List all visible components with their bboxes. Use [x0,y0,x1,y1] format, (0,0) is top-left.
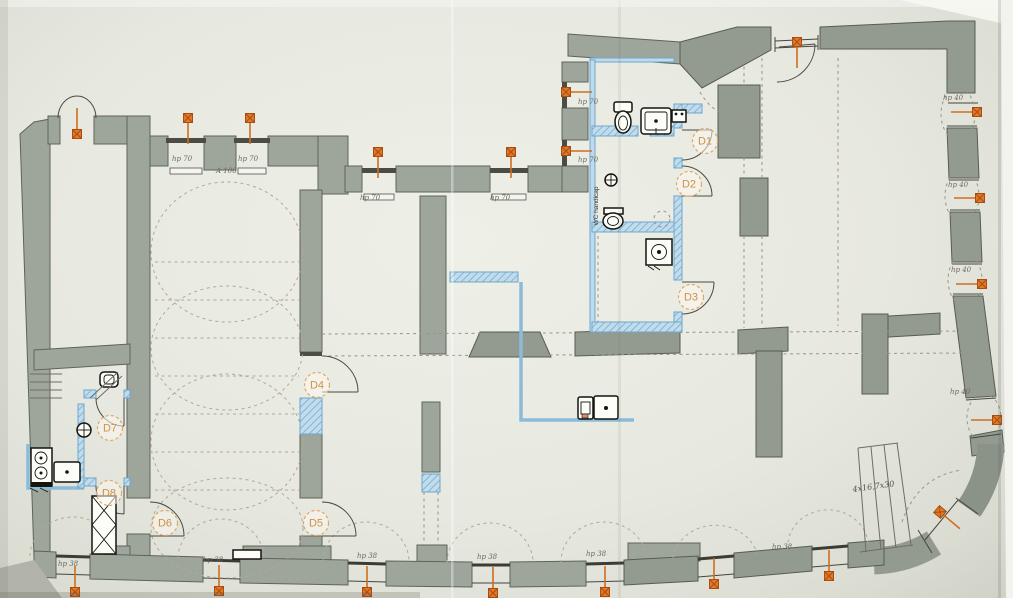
hp-label: hp 38 [477,553,498,561]
svg-text:D3: D3 [684,292,698,304]
hp-label: hp 38 [772,543,793,551]
svg-text:D6: D6 [158,518,172,530]
window-marker-icon [710,558,719,589]
kitchen-counter-sink [54,462,80,482]
door-label-d1: D1 [693,129,718,154]
door-label-d8: D8 [97,481,122,506]
double-sink [578,396,618,419]
bench [233,550,261,559]
svg-text:D1: D1 [698,136,712,148]
hp-label: hp 38 [203,556,224,564]
svg-text:D7: D7 [103,423,117,435]
svg-text:D8: D8 [102,488,116,500]
stair-note: 4x16,7x30 [851,479,895,494]
window-marker-icon [374,148,383,179]
wc-label: WC handicap [593,186,600,225]
hp-label: hp 70 [238,155,259,163]
floor-plan-photo: 4x16,7x30 hp 70 hp 70 hp 70 hp 70 hp 70 … [0,0,1013,598]
stairs-curved: 4x16,7x30 [851,443,913,552]
masonry-walls [20,21,1004,587]
hp-label: hp 38 [586,550,607,558]
sill-height-labels: hp 70 hp 70 hp 70 hp 70 hp 70 hp 70 hp 4… [58,94,972,568]
hp-label: hp 40 [950,388,971,396]
hp-label: hp 70 [578,98,599,106]
svg-text:D4: D4 [310,380,324,392]
hp-label: hp 40 [943,94,964,102]
dim-label: A 106 [215,167,237,175]
window-marker-icon [956,280,987,289]
svg-text:D5: D5 [309,518,323,530]
hp-label: hp 70 [490,194,511,202]
door-label-d7: D7 [98,416,123,441]
window-marker-icon [562,147,593,156]
floor-plan-drawing: 4x16,7x30 hp 70 hp 70 hp 70 hp 70 hp 70 … [0,0,1013,598]
hp-label: hp 38 [58,560,79,568]
window-marker-icon [215,565,224,596]
wall-basin [77,423,91,437]
window-marker-icon [793,38,802,69]
svg-text:D2: D2 [682,179,696,191]
hp-label: hp 38 [357,552,378,560]
window-marker-icon [954,194,985,203]
shower-tray [641,108,671,134]
hp-label: hp 40 [951,266,972,274]
wc-sink [605,174,617,186]
door-label-d3: D3 [679,285,704,310]
window-marker-icon [489,567,498,598]
door-label-d6: D6 [153,511,178,536]
hp-label: hp 70 [578,156,599,164]
window-marker-icon [73,108,82,139]
window-marker-icon [934,506,963,532]
window-marker-icon [951,108,982,117]
door-label-d4: D4 [305,373,330,398]
stove [30,448,52,492]
washing-machine [646,239,672,270]
toilet-bath [614,102,632,133]
window-marker-icon [971,416,1002,425]
window-marker-icon [562,88,593,97]
window-marker-icon [507,148,516,179]
bottom-window-frames [56,35,1001,583]
hp-label: hp 40 [948,181,969,189]
door-label-d2: D2 [677,172,702,197]
hp-label: hp 70 [360,194,381,202]
window-marker-icon [71,566,80,597]
boiler-small [672,110,686,122]
hp-label: hp 70 [172,155,193,163]
door-label-d5: D5 [304,511,329,536]
photo-artifacts [0,0,1013,598]
